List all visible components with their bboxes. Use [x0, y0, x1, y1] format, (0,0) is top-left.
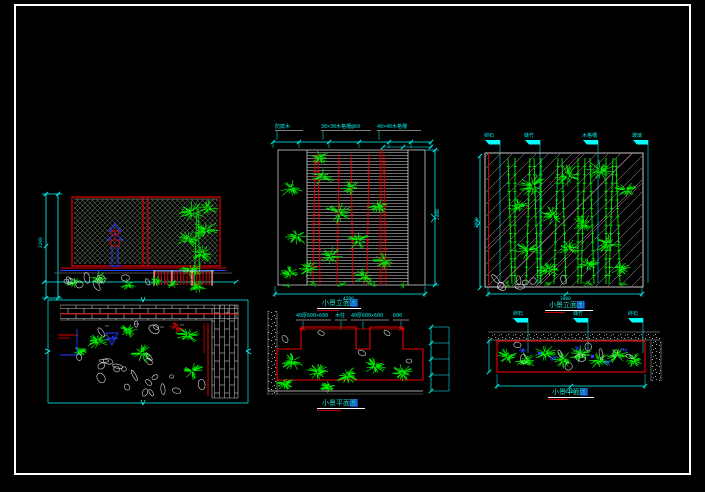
plants — [276, 353, 412, 393]
view-elevation-right: 卵石綠竹木格柵玻璃30002800 — [478, 128, 678, 318]
note-text: 600 — [393, 313, 402, 319]
dimension-right — [429, 325, 449, 393]
title-underline — [317, 308, 361, 309]
plants — [498, 345, 641, 368]
brick-walls — [60, 305, 238, 398]
flag-text: 卵石 — [513, 310, 523, 317]
cad-drawing-canvas: 2200 防腐木30×30木格柵@6040×40木格柵45002400 卵石綠竹… — [0, 0, 705, 492]
planting-bed — [497, 341, 645, 372]
note-text: 木柱 — [335, 312, 345, 319]
view-elevation-left: 2200 — [40, 178, 255, 310]
flag-text: 玻璃 — [632, 132, 642, 139]
title-underline-red — [548, 399, 568, 400]
title-underline — [317, 408, 365, 409]
flag-text: 碎石 — [628, 310, 638, 317]
view-plan-left — [40, 293, 260, 415]
flag-text: 卵石 — [484, 132, 494, 139]
flag-text: 綠竹 — [524, 132, 534, 139]
view-title-elevation-right: 小景立面圖 — [549, 301, 584, 309]
red-leader — [299, 327, 405, 331]
dimension-top — [271, 140, 433, 149]
ground-lines — [54, 268, 232, 273]
flag-text: 木格柵 — [582, 132, 597, 139]
flag-text: 綠竹 — [573, 310, 583, 317]
dim-text-right: 2400 — [435, 209, 441, 220]
note-text: 防腐木 — [275, 123, 290, 130]
view-plan-middle: 40厚600×600木柱40厚600×600600 — [263, 303, 458, 423]
plants — [74, 322, 203, 380]
stipple-strip — [268, 311, 277, 395]
dim-text-left: 2800 — [474, 217, 480, 228]
dim-text-left: 2200 — [38, 237, 44, 248]
title-underline-red — [317, 310, 339, 311]
note-text: 30×30木格柵@60 — [321, 123, 360, 130]
title-underline — [545, 310, 593, 311]
note-underlines — [296, 320, 409, 329]
ground-lines — [268, 391, 423, 394]
view-elevation-middle: 防腐木30×30木格柵@6040×40木格柵45002400 — [263, 118, 448, 313]
misc-lines — [58, 324, 184, 355]
title-underline-red — [317, 410, 341, 411]
title-underline-red — [545, 312, 565, 313]
note-text: 40厚600×600 — [296, 313, 328, 319]
view-title-elevation-middle: 小景立面圖 — [322, 299, 357, 307]
title-underline — [548, 397, 594, 398]
fence — [154, 270, 214, 286]
note-text: 40×40木格柵 — [377, 123, 407, 130]
stones — [76, 321, 206, 397]
note-text: 40厚600×600 — [351, 313, 383, 319]
view-title-plan-right: 小景平面圖 — [552, 388, 587, 396]
note-underlines — [275, 131, 421, 141]
view-title-plan-middle: 小景平面圖 — [322, 399, 357, 407]
stones — [281, 329, 412, 363]
